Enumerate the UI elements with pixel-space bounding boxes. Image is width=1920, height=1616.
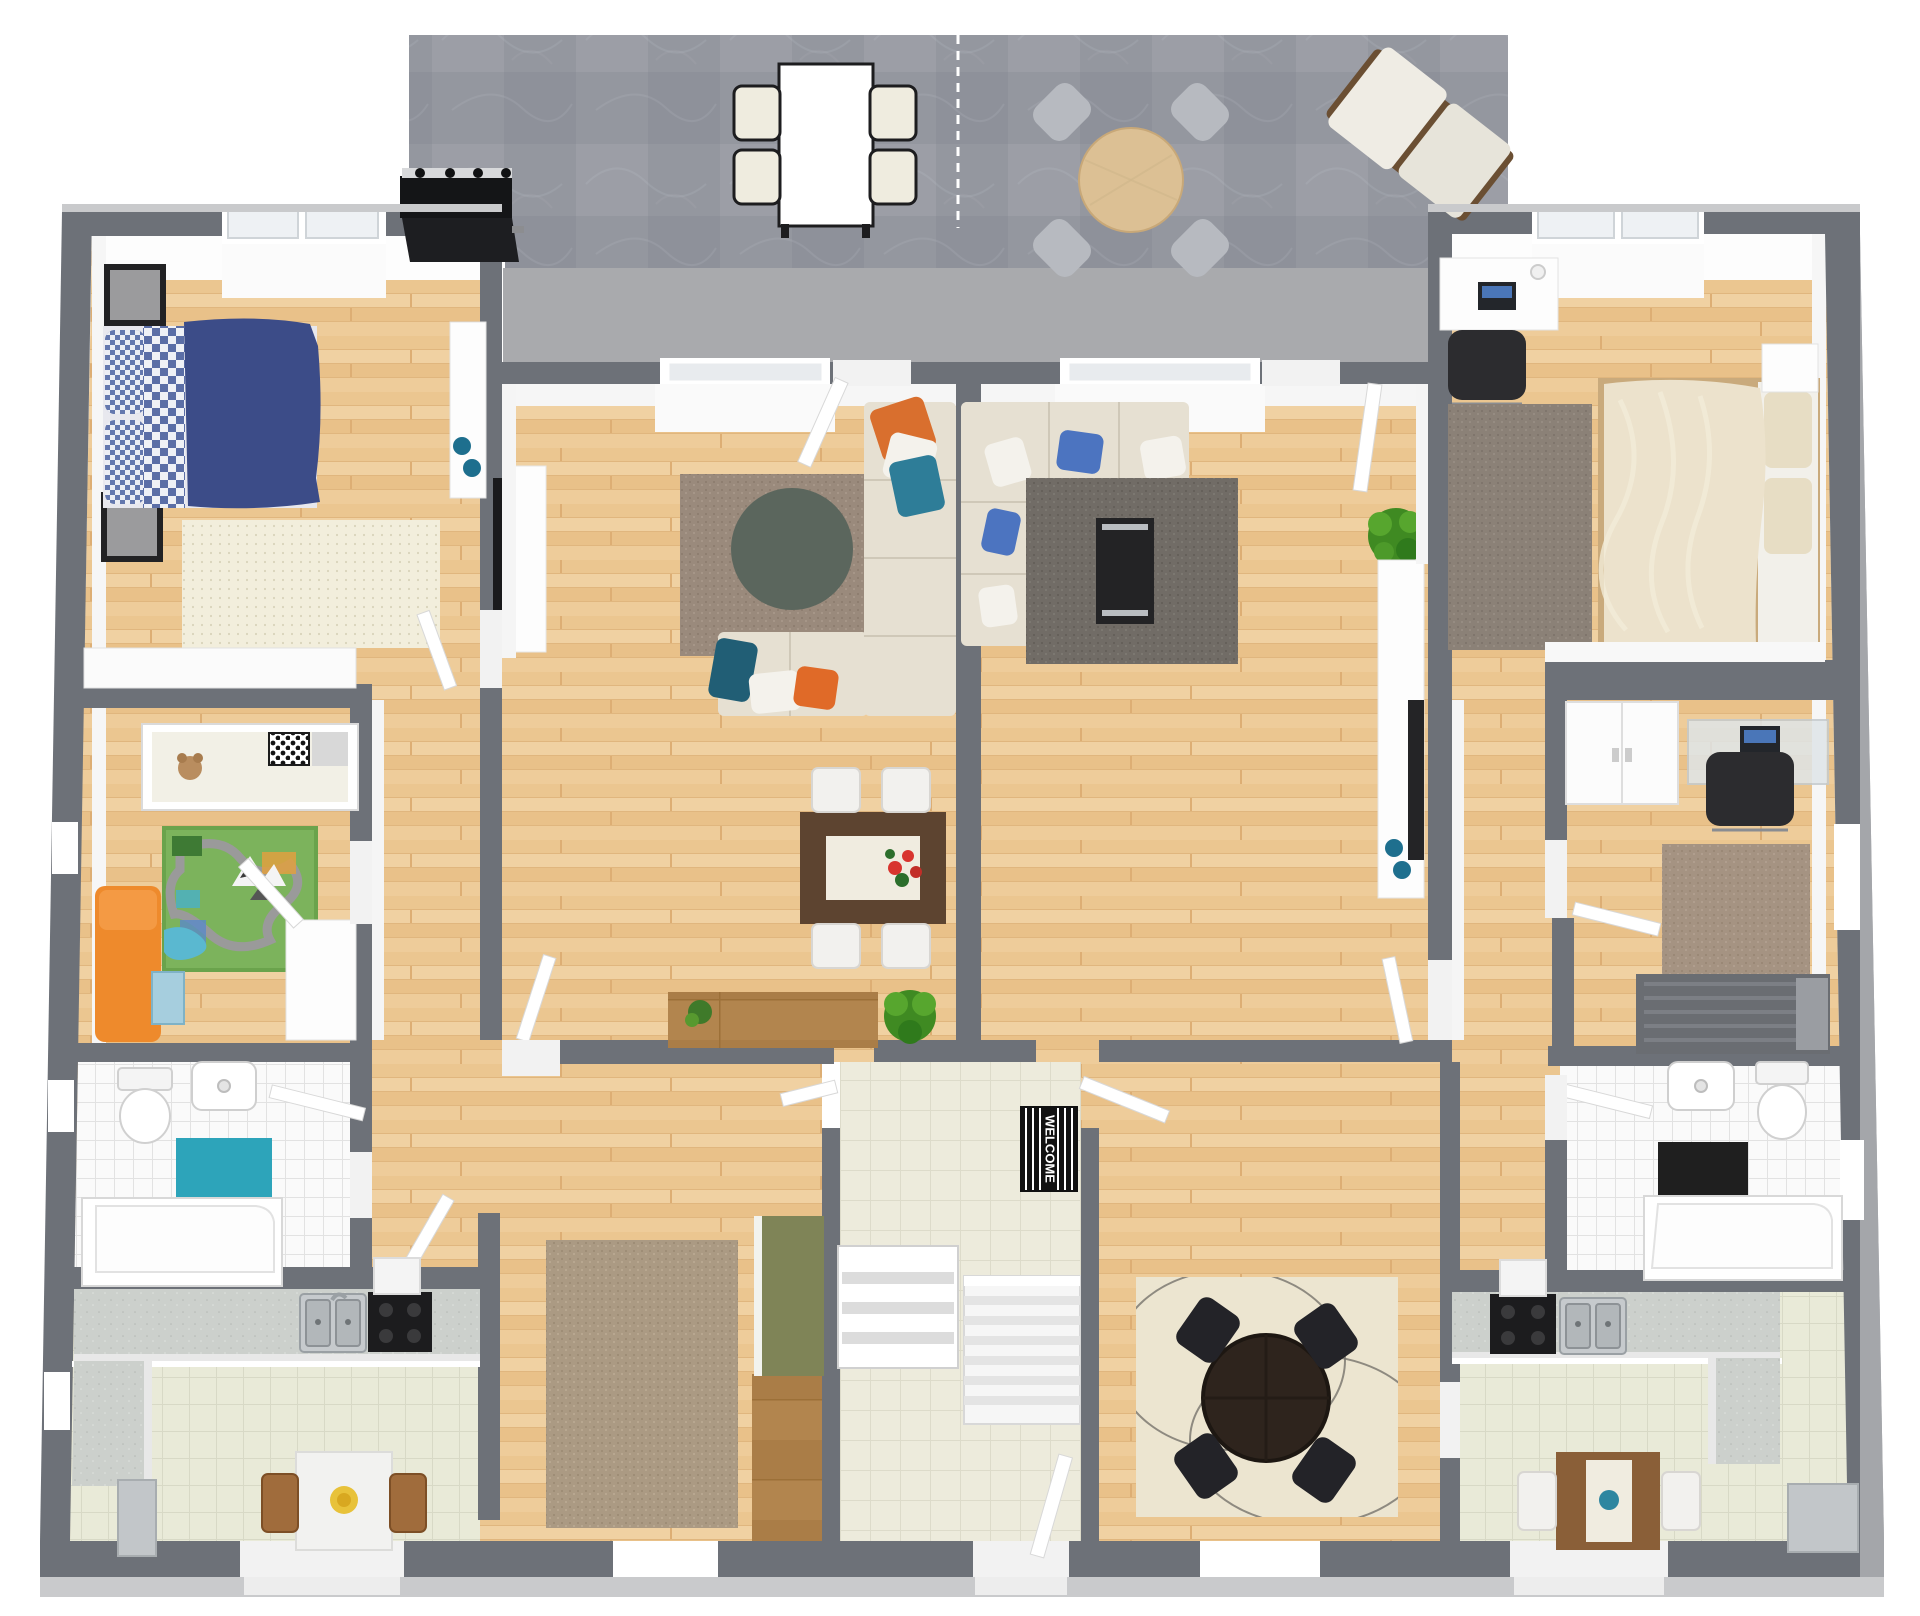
svg-text:WELCOME: WELCOME [1043,1115,1058,1183]
